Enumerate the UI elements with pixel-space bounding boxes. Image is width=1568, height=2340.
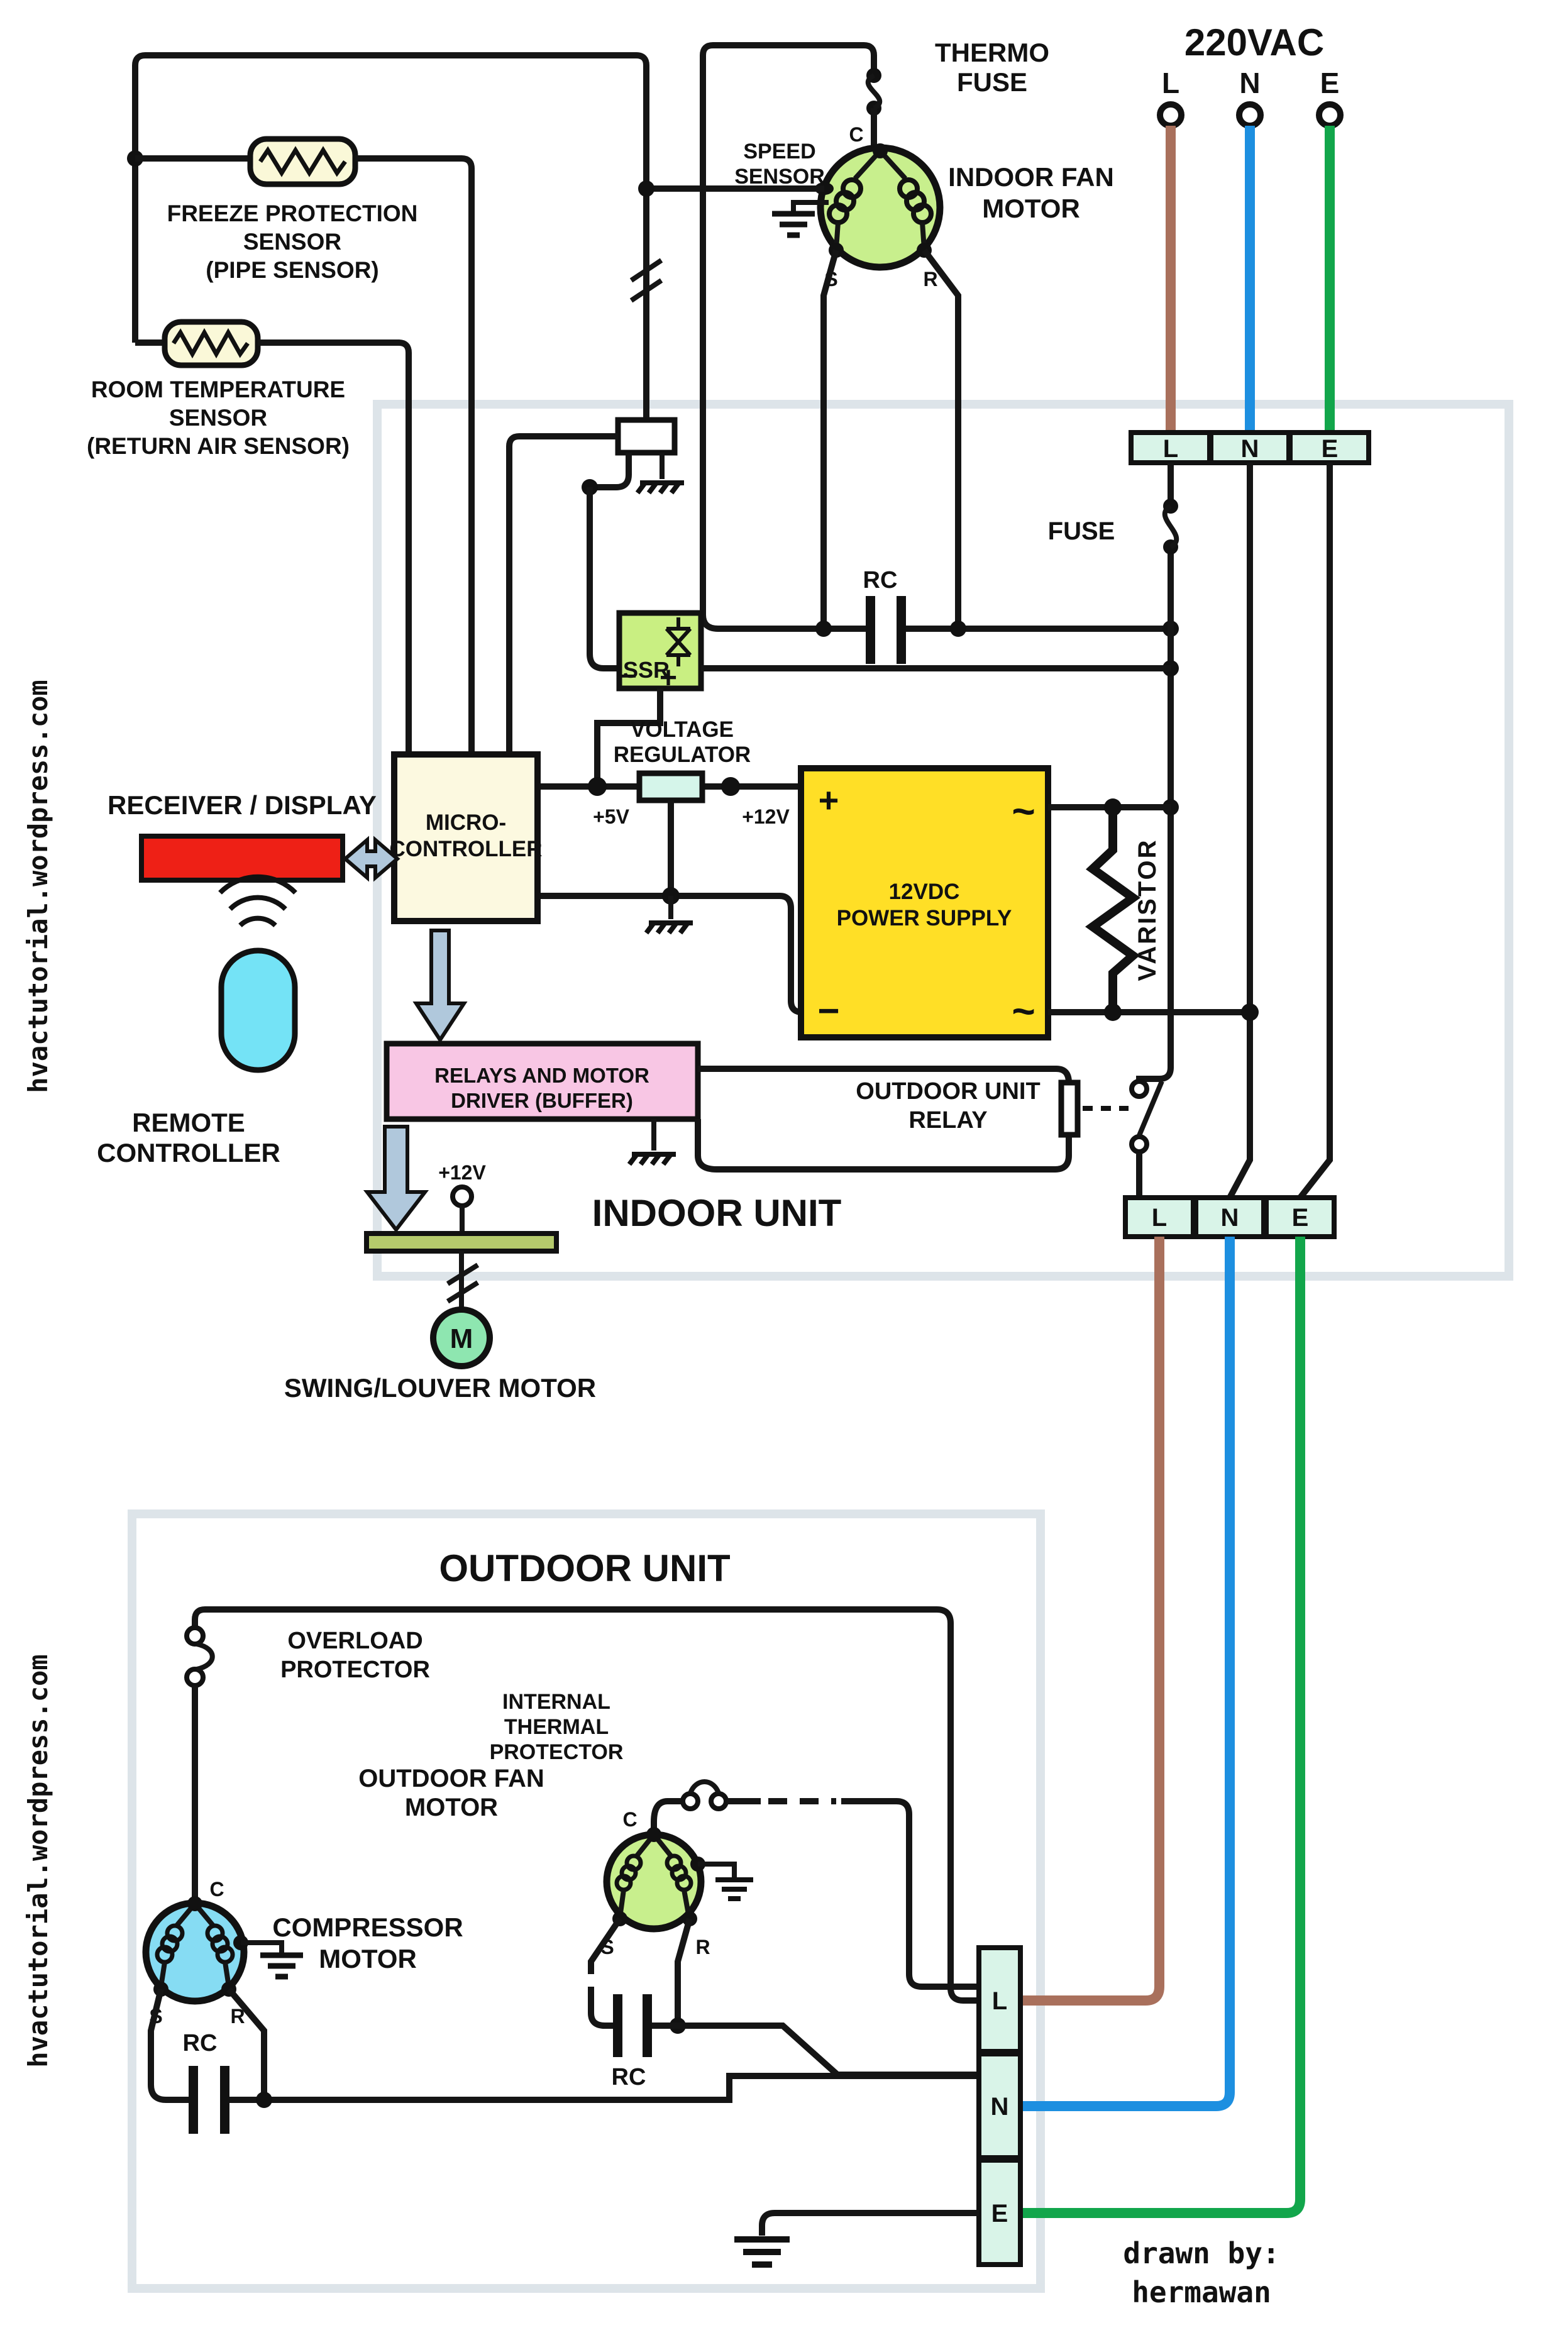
indoor-fan-label-1: INDOOR FAN (948, 162, 1114, 192)
relay-contact (1132, 1137, 1147, 1152)
thermo-fuse-label-2: FUSE (957, 67, 1027, 97)
indoor-rc-label: RC (863, 567, 898, 593)
credit-line-2: hermawan (1132, 2275, 1271, 2309)
micro-label-2: CONTROLLER (389, 837, 542, 861)
ground-icon (715, 1880, 753, 1899)
outdoor-unit-title: OUTDOOR UNIT (439, 1547, 730, 1589)
compressor-c: C (209, 1878, 224, 1901)
outdoor-unit-box (132, 1514, 1041, 2288)
thermal-contact (683, 1794, 698, 1809)
source-l-terminal (1160, 104, 1181, 126)
ground-hatch-icon (646, 923, 693, 933)
junction-dot (1241, 1003, 1259, 1021)
psu-label-1: 12VDC (889, 880, 960, 904)
freeze-sensor-label-2: SENSOR (243, 229, 341, 255)
indoor-fan-label-2: MOTOR (982, 194, 1080, 223)
outdoor-terminal-e: E (991, 2200, 1008, 2227)
indoor-fan-motor (815, 143, 940, 267)
overload-label-2: PROTECTOR (280, 1657, 430, 1683)
thermal-symbol (690, 1782, 719, 1793)
fuse-label: FUSE (1048, 517, 1115, 545)
swing-motor-label: SWING/LOUVER MOTOR (284, 1373, 596, 1403)
psu-ac-top: ~ (1012, 788, 1035, 834)
relay-coil-wire-bottom (698, 1119, 1069, 1169)
psu-minus: − (817, 990, 839, 1032)
thermal-to-l-wire (841, 1801, 979, 1987)
overload-contact (187, 1628, 203, 1644)
indoor-rc-capacitor (897, 596, 906, 664)
top-terminal-l: L (1163, 435, 1178, 463)
hvac-wiring-diagram-page: hvactutorial.wordpress.com hvactutorial.… (0, 0, 1568, 2340)
coupler-relay-box (618, 420, 675, 453)
compressor-rc-rail-wire (229, 2076, 979, 2100)
swing-motor-m: M (450, 1323, 473, 1354)
outdoor-terminal-l: L (992, 1987, 1007, 2015)
fan-r-wire (924, 250, 958, 629)
junction-dot (638, 180, 654, 197)
thermal-label-3: PROTECTOR (490, 1740, 624, 1764)
freeze-sensor-wire-right (355, 158, 472, 754)
thermo-fuse-label-1: THERMO (935, 38, 1049, 67)
credit-line-1: drawn by: (1123, 2236, 1279, 2270)
compressor-rc-capacitor (220, 2066, 229, 2134)
freeze-sensor-label-3: (PIPE SENSOR) (206, 257, 379, 283)
v12-terminal (453, 1187, 472, 1206)
live-line-wire (1139, 463, 1171, 1081)
earth-line-wire (1300, 463, 1330, 1198)
blue-wire-to-outdoor (1023, 1237, 1230, 2106)
outdoor-fan-label-1: OUTDOOR FAN (358, 1765, 544, 1792)
v12-label: +12V (742, 805, 790, 828)
top-terminal-n: N (1241, 435, 1259, 463)
compressor-rc-capacitor (189, 2066, 198, 2134)
source-n-label: N (1239, 67, 1260, 99)
wiring-diagram: hvactutorial.wordpress.com hvactutorial.… (0, 0, 1568, 2340)
indoor-fan-r: R (923, 268, 937, 290)
remote-label-2: CONTROLLER (97, 1138, 280, 1167)
relay-contact (1132, 1081, 1147, 1096)
indoor-rc-capacitor (866, 596, 875, 664)
top-terminal-e: E (1322, 435, 1339, 463)
outdoor-earth-wire (762, 2213, 979, 2236)
compressor-label-2: MOTOR (319, 1944, 417, 1973)
psu-label-2: POWER SUPPLY (837, 906, 1012, 930)
relays-label-1: RELAYS AND MOTOR (434, 1064, 649, 1087)
swing-connector-bar (367, 1233, 556, 1251)
outdoor-relay-label-1: OUTDOOR UNIT (856, 1078, 1040, 1105)
compressor-motor (146, 1896, 248, 2001)
room-sensor-label-1: ROOM TEMPERATURE (91, 377, 345, 402)
room-sensor-label-2: SENSOR (169, 405, 267, 431)
relays-label-2: DRIVER (BUFFER) (451, 1089, 633, 1112)
vreg-label-2: REGULATOR (614, 742, 751, 767)
bottom-terminal-l: L (1152, 1204, 1167, 1232)
v12-swing-label: +12V (438, 1161, 486, 1184)
thermal-contact (711, 1794, 726, 1809)
indoor-top-terminal-block: L N E (1131, 433, 1369, 463)
ground-icon (734, 2239, 790, 2265)
vreg-label-1: VOLTAGE (631, 717, 734, 742)
thermo-fuse-loop-wire (703, 45, 874, 629)
fan-rc-rail-wire (652, 2026, 979, 2075)
fan-rc-capacitor (613, 1994, 622, 2057)
speed-sensor-label-1: SPEED (743, 140, 815, 163)
remote-label-1: REMOTE (132, 1108, 245, 1137)
fan-rc-label: RC (612, 2064, 646, 2090)
ssr-minus: − (621, 661, 637, 692)
indoor-fan-c: C (849, 123, 863, 146)
receiver-label: RECEIVER / DISPLAY (108, 790, 377, 820)
down-arrow-icon (416, 930, 464, 1040)
overload-contact (187, 1669, 203, 1686)
speed-sensor-label-2: SENSOR (734, 165, 825, 189)
varistor-symbol (1093, 807, 1133, 1012)
freeze-sensor-label-1: FREEZE PROTECTION (167, 201, 418, 226)
coupler-to-micro-wire (509, 436, 618, 754)
neutral-line-wire (1230, 463, 1250, 1198)
psu-ac-bottom: ~ (1012, 988, 1035, 1034)
compressor-rc-label: RC (183, 2030, 218, 2056)
outdoor-fan-r-wire (678, 1919, 690, 2026)
indoor-unit-title: INDOOR UNIT (592, 1192, 842, 1234)
junction-dot (950, 621, 966, 637)
watermark-bottom: hvactutorial.wordpress.com (23, 1654, 53, 2067)
remote-controller (221, 951, 295, 1070)
outdoor-fan-r: R (695, 1936, 710, 1958)
compressor-label-1: COMPRESSOR (272, 1912, 463, 1942)
outdoor-fan-label-2: MOTOR (405, 1794, 498, 1821)
outdoor-fan-motor (607, 1827, 705, 1929)
source-e-label: E (1320, 67, 1340, 99)
ground-hatch-icon (629, 1154, 676, 1164)
junction-dot (815, 621, 832, 637)
source-n-terminal (1239, 104, 1261, 126)
thermal-label-1: INTERNAL (502, 1690, 610, 1714)
source-title: 220VAC (1184, 21, 1324, 63)
room-sensor-label-3: (RETURN AIR SENSOR) (87, 433, 350, 459)
ground-icon (260, 1955, 303, 1977)
voltage-regulator-box (639, 773, 702, 800)
bottom-terminal-e: E (1292, 1204, 1309, 1232)
v5-label: +5V (593, 805, 629, 828)
ground-icon (772, 214, 815, 235)
outdoor-terminal-n: N (991, 2093, 1009, 2121)
ssr-input-wire (590, 487, 619, 668)
indoor-bottom-terminal-block: L N E (1125, 1198, 1334, 1237)
outdoor-relay-label-2: RELAY (908, 1107, 987, 1134)
micro-label-1: MICRO- (426, 810, 506, 835)
ground-hatch-icon (638, 483, 684, 493)
watermark-top: hvactutorial.wordpress.com (23, 680, 53, 1093)
fan-rc-capacitor (643, 1994, 652, 2057)
bottom-terminal-n: N (1221, 1204, 1239, 1232)
thermal-label-2: THERMAL (504, 1715, 609, 1739)
receiver-display (141, 836, 343, 880)
signal-waves-icon (220, 877, 295, 925)
overload-symbol (197, 1644, 213, 1669)
junction-dot (256, 2092, 272, 2108)
psu-plus: + (819, 780, 839, 820)
outdoor-fan-c: C (622, 1808, 637, 1831)
varistor-label: VARISTOR (1134, 839, 1161, 981)
junction-dot (588, 777, 607, 796)
junction-dot (721, 777, 740, 796)
outdoor-terminal-block: L N E (979, 1948, 1020, 2265)
relay-coil (1061, 1083, 1078, 1135)
overload-label-1: OVERLOAD (287, 1628, 422, 1654)
source-l-label: L (1162, 67, 1179, 99)
source-e-terminal (1319, 104, 1340, 126)
fan-s-wire (824, 250, 836, 629)
